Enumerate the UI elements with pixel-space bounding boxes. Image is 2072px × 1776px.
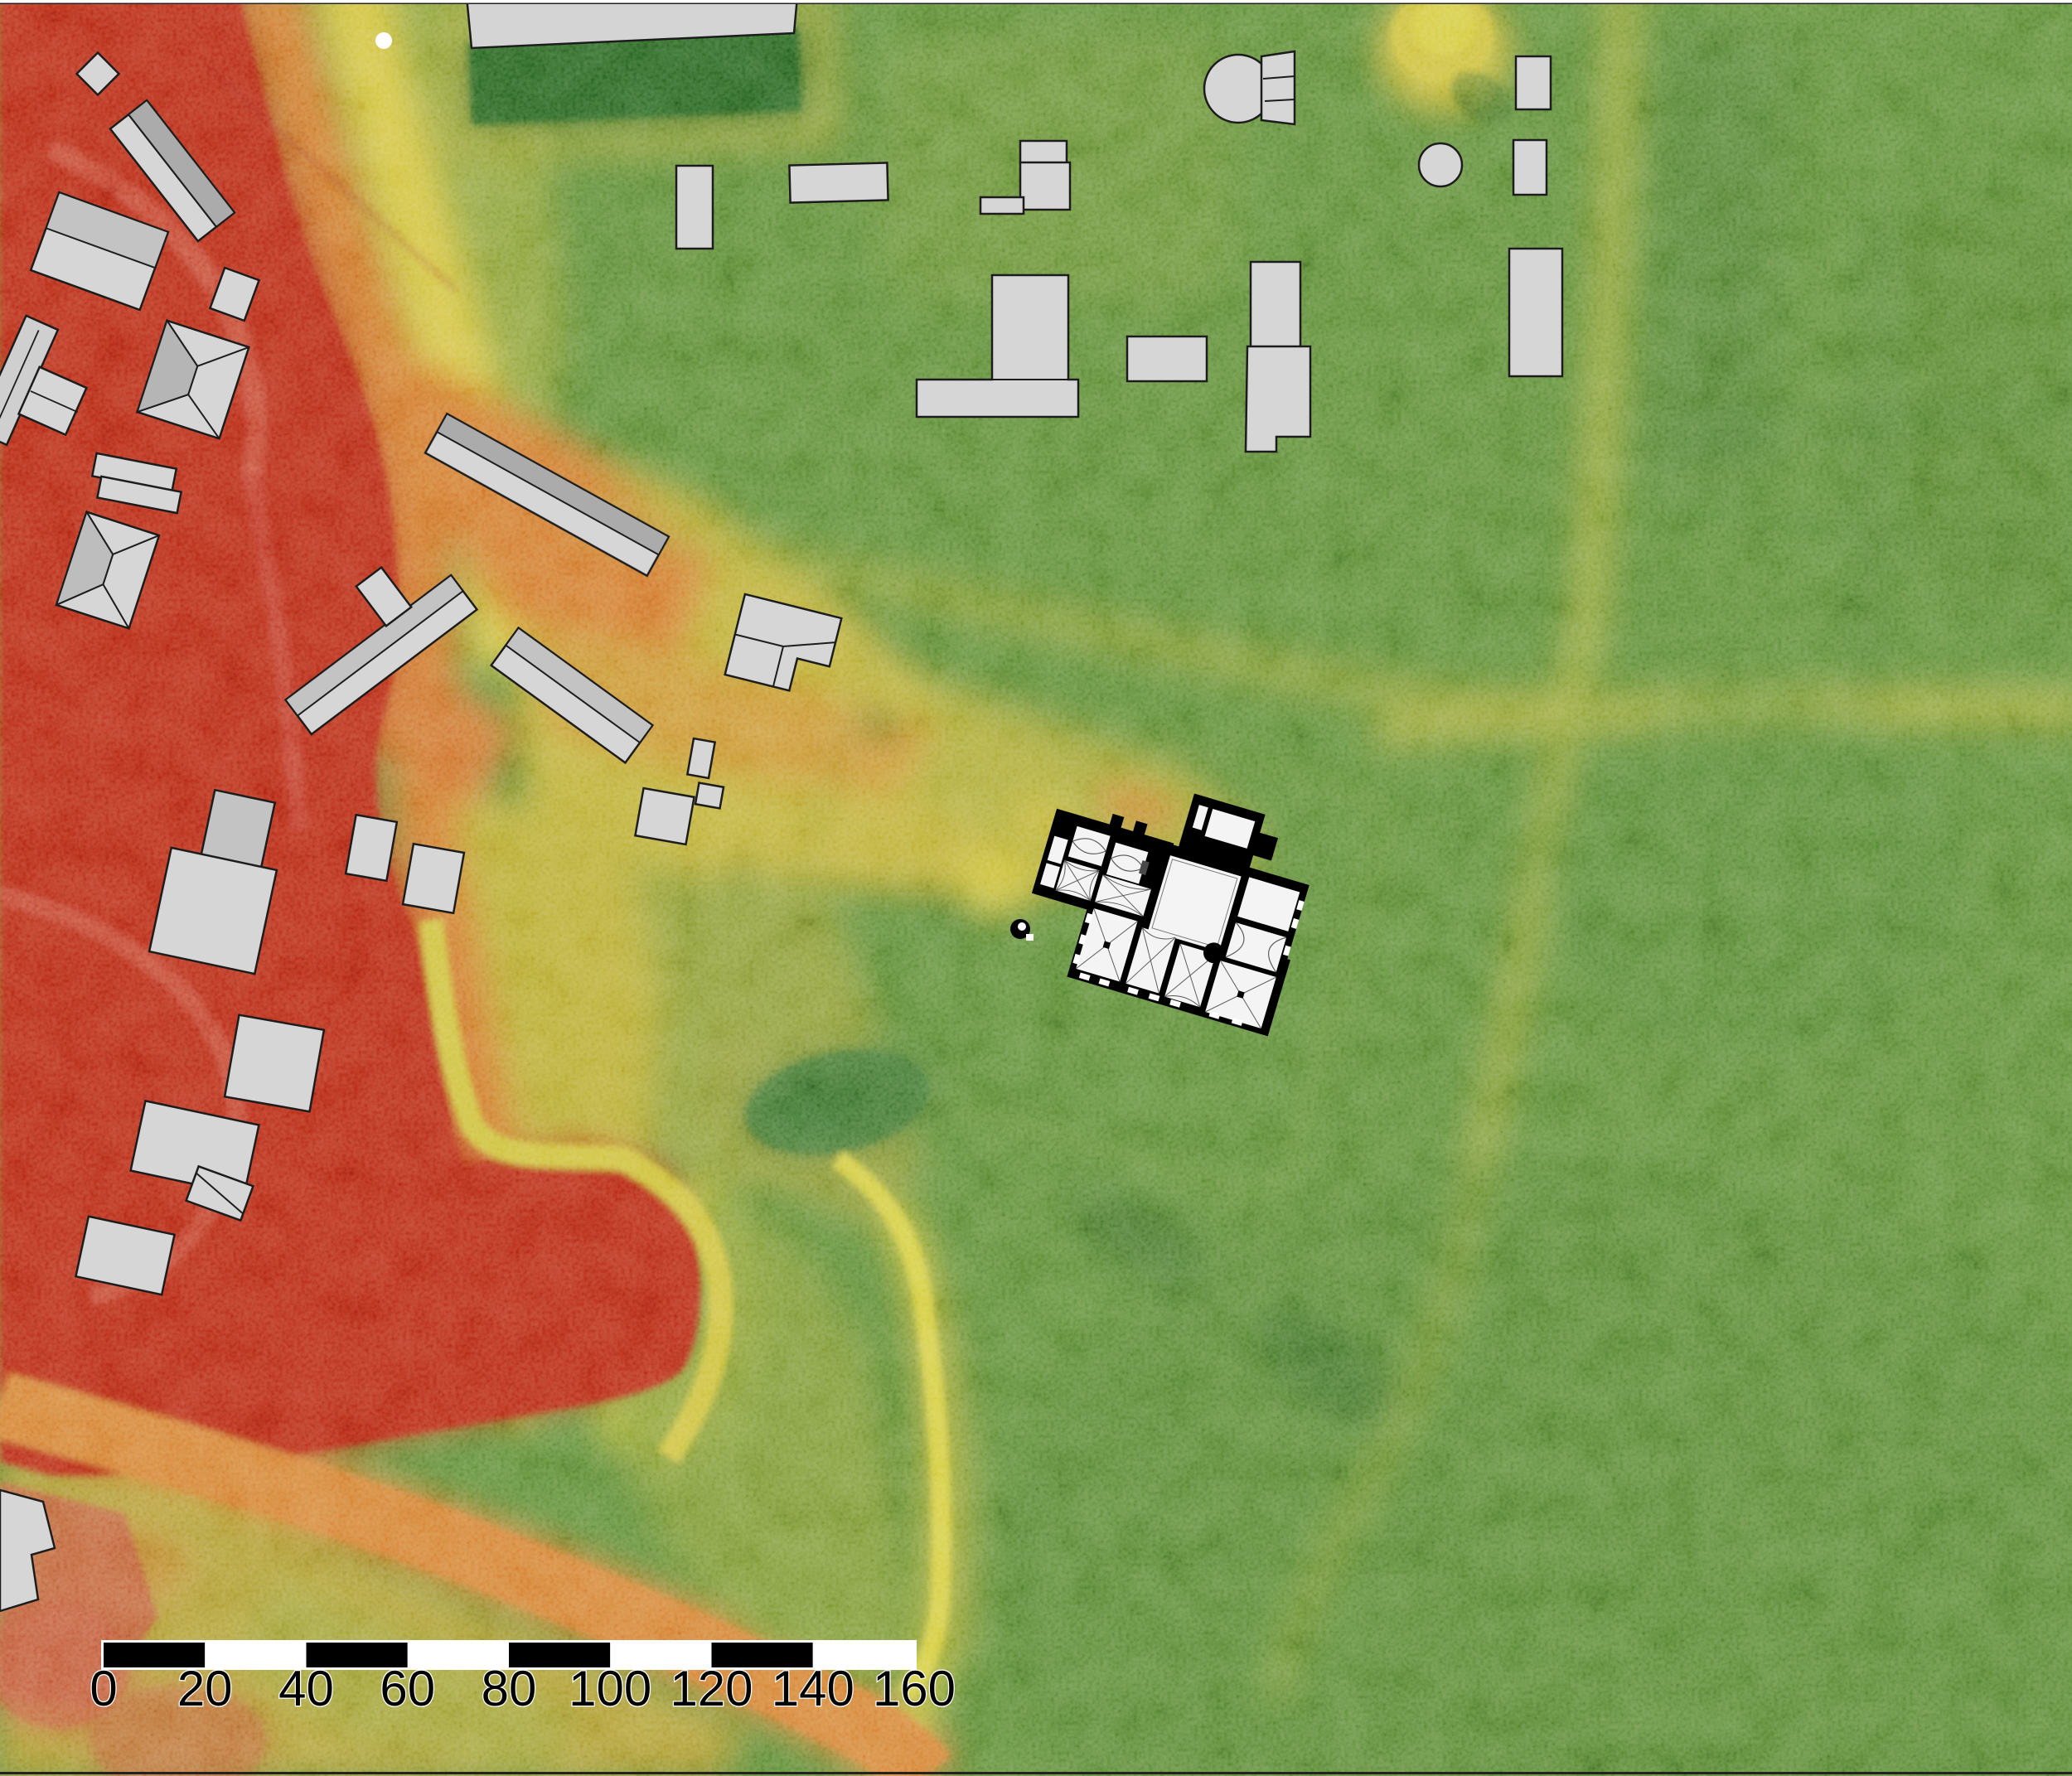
svg-text:140: 140 [772,1661,854,1716]
svg-text:160: 160 [873,1661,956,1716]
svg-text:80: 80 [482,1661,537,1716]
svg-text:60: 60 [380,1661,435,1716]
svg-text:20: 20 [177,1661,233,1716]
svg-text:0: 0 [90,1661,117,1716]
svg-text:120: 120 [670,1661,753,1716]
svg-text:40: 40 [278,1661,334,1716]
svg-text:100: 100 [569,1661,651,1716]
